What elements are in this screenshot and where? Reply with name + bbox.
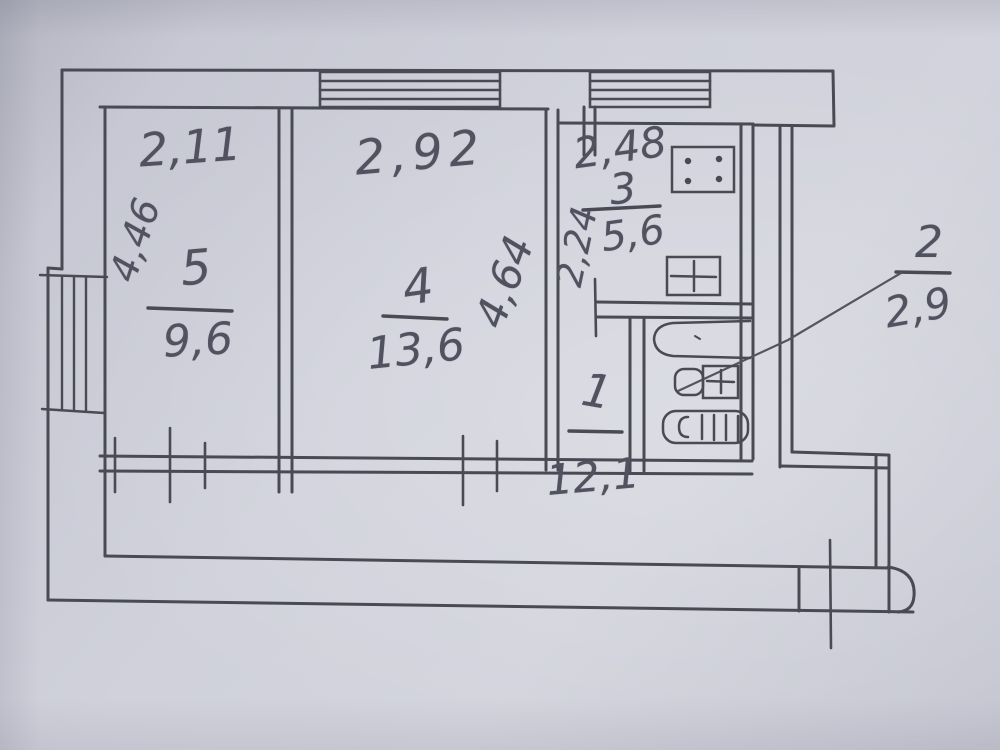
toilet-icon	[675, 366, 738, 398]
room5-number: 5	[179, 243, 214, 293]
floor-plan-drawing	[0, 0, 1000, 750]
room4-width-dimension: 2,92	[353, 123, 488, 182]
room4-number: 4	[400, 261, 437, 313]
room4-area: 13,6	[365, 323, 467, 377]
floor-plan-photo: 2,11 4,46 5 9,6 2,92 4,64 4 13,6 2,48 2,…	[0, 0, 1000, 750]
room-number-underlines	[148, 206, 950, 432]
room2-number: 2	[915, 221, 943, 265]
room2-area: 2,9	[881, 282, 954, 335]
window-left-room5	[40, 275, 107, 413]
room2-leader-line	[678, 273, 901, 391]
room1-area: 12,1	[545, 452, 642, 502]
room3-area: 5,6	[599, 210, 668, 258]
door-jamb-ticks	[115, 428, 497, 505]
kitchen-sink-icon	[667, 257, 720, 295]
window-top-room4	[320, 72, 500, 107]
room3-number: 3	[608, 167, 639, 212]
bathtub-icon	[654, 321, 750, 358]
room5-width-dimension: 2,11	[137, 120, 242, 173]
window-top-kitchen	[590, 72, 710, 107]
room5-area: 9,6	[162, 317, 234, 365]
washbasin-icon	[663, 411, 748, 443]
gas-stove-icon	[672, 147, 734, 192]
